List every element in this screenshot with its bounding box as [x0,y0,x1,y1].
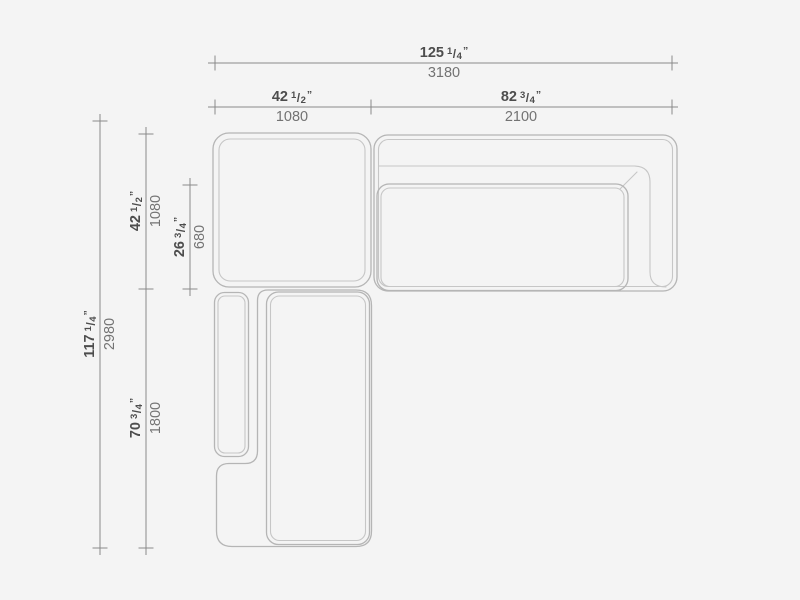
dim-line-total-width [208,56,678,71]
dim-line-corner-depth [139,127,154,289]
dim-line-chaise-depth [139,289,154,555]
dim-line-corner-width [208,100,371,115]
chaise-armrest-inner-outline [218,296,245,453]
dim-line-sofa-width [371,100,678,115]
sofa-dimension-drawing: 1251/4” 3180 421/2” 1080 823/4” 2100 117… [0,0,800,600]
chaise-armrest-outline [215,293,249,457]
corner-module-outline [213,133,371,287]
chaise-seat-cushion-inner-outline [271,296,366,541]
sofa-seat-cushion-outline [377,184,628,291]
dim-line-total-depth [93,114,108,555]
corner-module-inner-outline [219,139,365,281]
chaise-seat-cushion-outline [267,292,370,545]
dim-line-seat-depth [183,178,198,296]
drawing-canvas [0,0,800,600]
sofa-module-outline [374,135,677,291]
chaise-module-outline [217,290,372,547]
sofa-seat-cushion-inner-outline [381,188,624,287]
